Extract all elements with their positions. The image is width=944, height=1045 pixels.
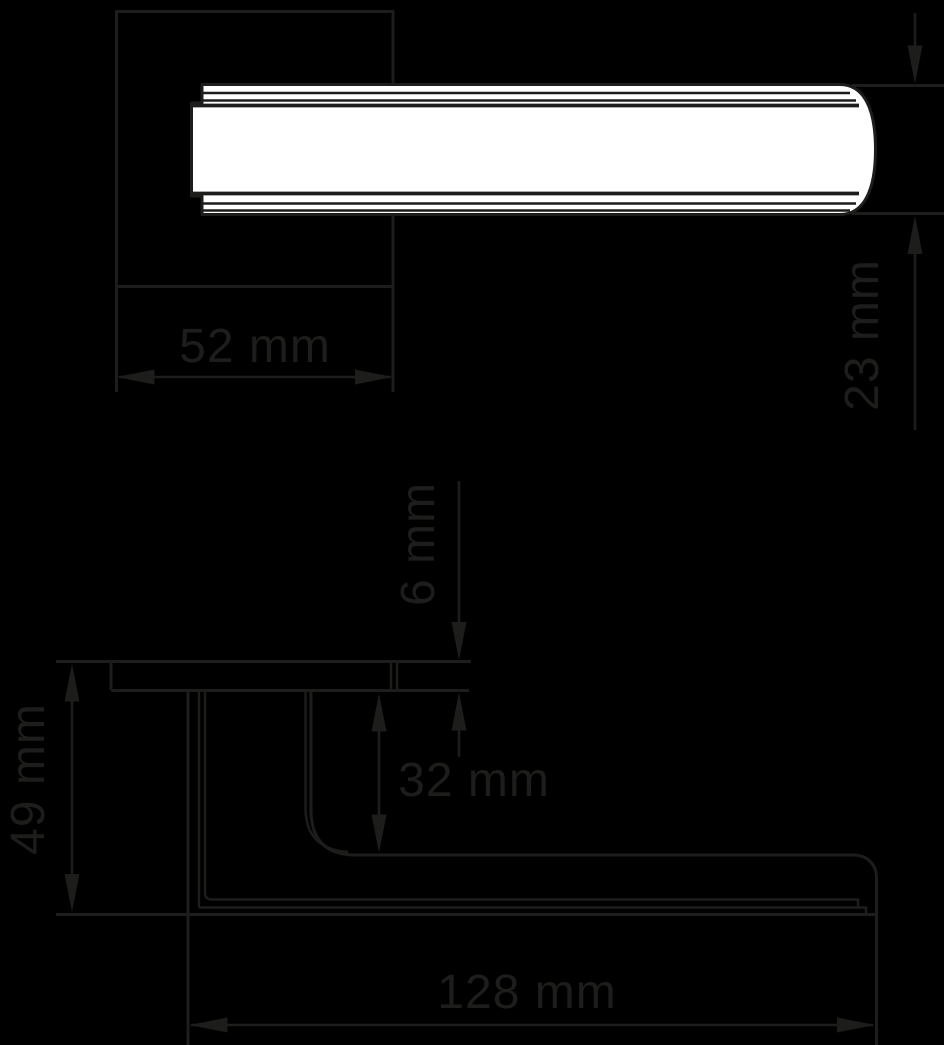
dimension-label-32mm: 32 mm — [398, 754, 550, 807]
dimension-label-23mm: 23 mm — [836, 259, 889, 411]
lever-bar-front — [192, 85, 876, 215]
dimension-label-52mm: 52 mm — [179, 320, 331, 373]
dimension-label-128mm: 128 mm — [437, 966, 616, 1019]
diagram-canvas: 52 mm 23 mm — [0, 0, 944, 1045]
handle-dimension-diagram: 52 mm 23 mm — [0, 0, 944, 1045]
dimension-label-49mm: 49 mm — [2, 703, 55, 855]
dimension-label-6mm: 6 mm — [392, 482, 445, 606]
